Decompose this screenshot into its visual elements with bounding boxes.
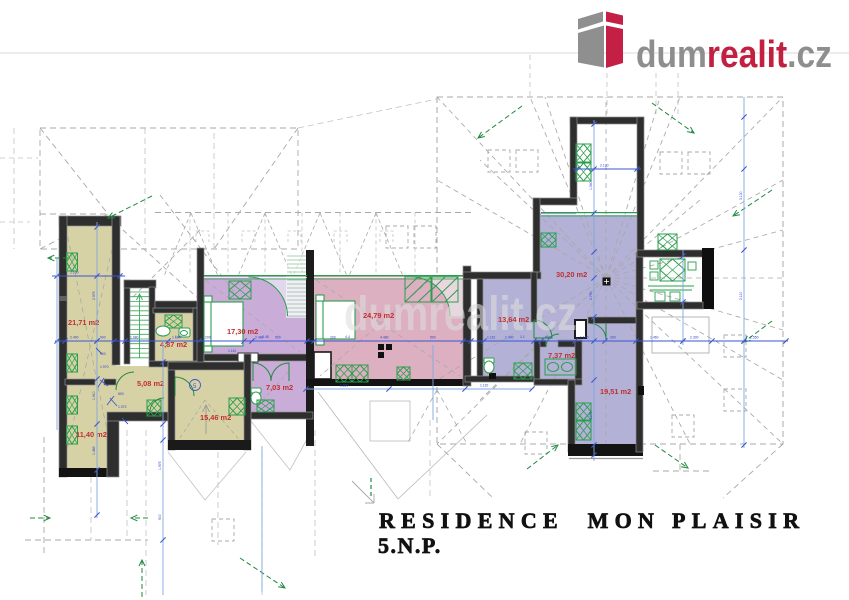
svg-text:1.110: 1.110: [487, 336, 495, 340]
svg-text:2.400: 2.400: [505, 336, 514, 340]
svg-text:1.910: 1.910: [92, 391, 96, 400]
svg-text:1.972: 1.972: [118, 405, 127, 409]
svg-text:1.975: 1.975: [158, 461, 162, 470]
svg-text:15,46 m2: 15,46 m2: [200, 413, 231, 422]
svg-text:2.48: 2.48: [262, 335, 269, 339]
svg-text:2.790: 2.790: [589, 291, 593, 300]
svg-text:1.970: 1.970: [100, 365, 109, 369]
svg-text:7,03 m2: 7,03 m2: [266, 383, 293, 392]
svg-text:2.550: 2.550: [340, 384, 349, 388]
svg-text:19,51 m2: 19,51 m2: [600, 387, 631, 396]
svg-text:1.110: 1.110: [480, 384, 488, 388]
svg-text:17,30 m2: 17,30 m2: [227, 327, 258, 336]
svg-text:1.1: 1.1: [520, 335, 525, 339]
svg-text:1.90: 1.90: [175, 335, 182, 339]
svg-text:2.490: 2.490: [70, 336, 79, 340]
svg-text:2.100: 2.100: [70, 271, 79, 275]
svg-text:13,64 m2: 13,64 m2: [498, 315, 529, 324]
svg-text:RESIDENCE MON PLAISIR: RESIDENCE MON PLAISIR: [379, 508, 800, 533]
svg-text:2.975: 2.975: [92, 291, 96, 300]
svg-text:24,79 m2: 24,79 m2: [363, 311, 394, 320]
svg-text:1.540: 1.540: [589, 181, 593, 190]
svg-text:1.110: 1.110: [228, 349, 236, 353]
svg-text:1.485: 1.485: [92, 446, 96, 455]
svg-text:5,08 m2: 5,08 m2: [137, 379, 164, 388]
svg-text:800: 800: [118, 392, 124, 396]
svg-text:4.4: 4.4: [345, 335, 350, 339]
svg-text:200: 200: [610, 336, 616, 340]
svg-text:11,40 m2: 11,40 m2: [76, 430, 107, 439]
svg-text:1.460: 1.460: [650, 336, 659, 340]
svg-text:4.480: 4.480: [380, 336, 389, 340]
svg-text:200: 200: [205, 336, 211, 340]
svg-text:200: 200: [330, 336, 336, 340]
svg-text:2.110: 2.110: [739, 292, 743, 300]
svg-text:21,71 m2: 21,71 m2: [68, 318, 99, 327]
svg-text:5.N.P.: 5.N.P.: [378, 533, 442, 558]
svg-text:30,20 m2: 30,20 m2: [556, 270, 587, 279]
svg-text:500: 500: [430, 336, 436, 340]
svg-text:2.130: 2.130: [600, 164, 609, 168]
svg-text:7,37 m2: 7,37 m2: [548, 351, 575, 360]
svg-text:2.300: 2.300: [690, 336, 699, 340]
svg-text:1.140: 1.140: [580, 336, 589, 340]
svg-text:900: 900: [100, 336, 106, 340]
svg-text:1.980: 1.980: [130, 336, 139, 340]
svg-text:500: 500: [275, 336, 281, 340]
svg-text:3.130: 3.130: [739, 191, 743, 200]
svg-text:900: 900: [158, 514, 162, 520]
svg-text:900: 900: [545, 336, 551, 340]
svg-text:dumrealit.cz: dumrealit.cz: [636, 34, 832, 76]
svg-text:2.550: 2.550: [750, 336, 759, 340]
svg-text:4.070: 4.070: [589, 411, 593, 420]
